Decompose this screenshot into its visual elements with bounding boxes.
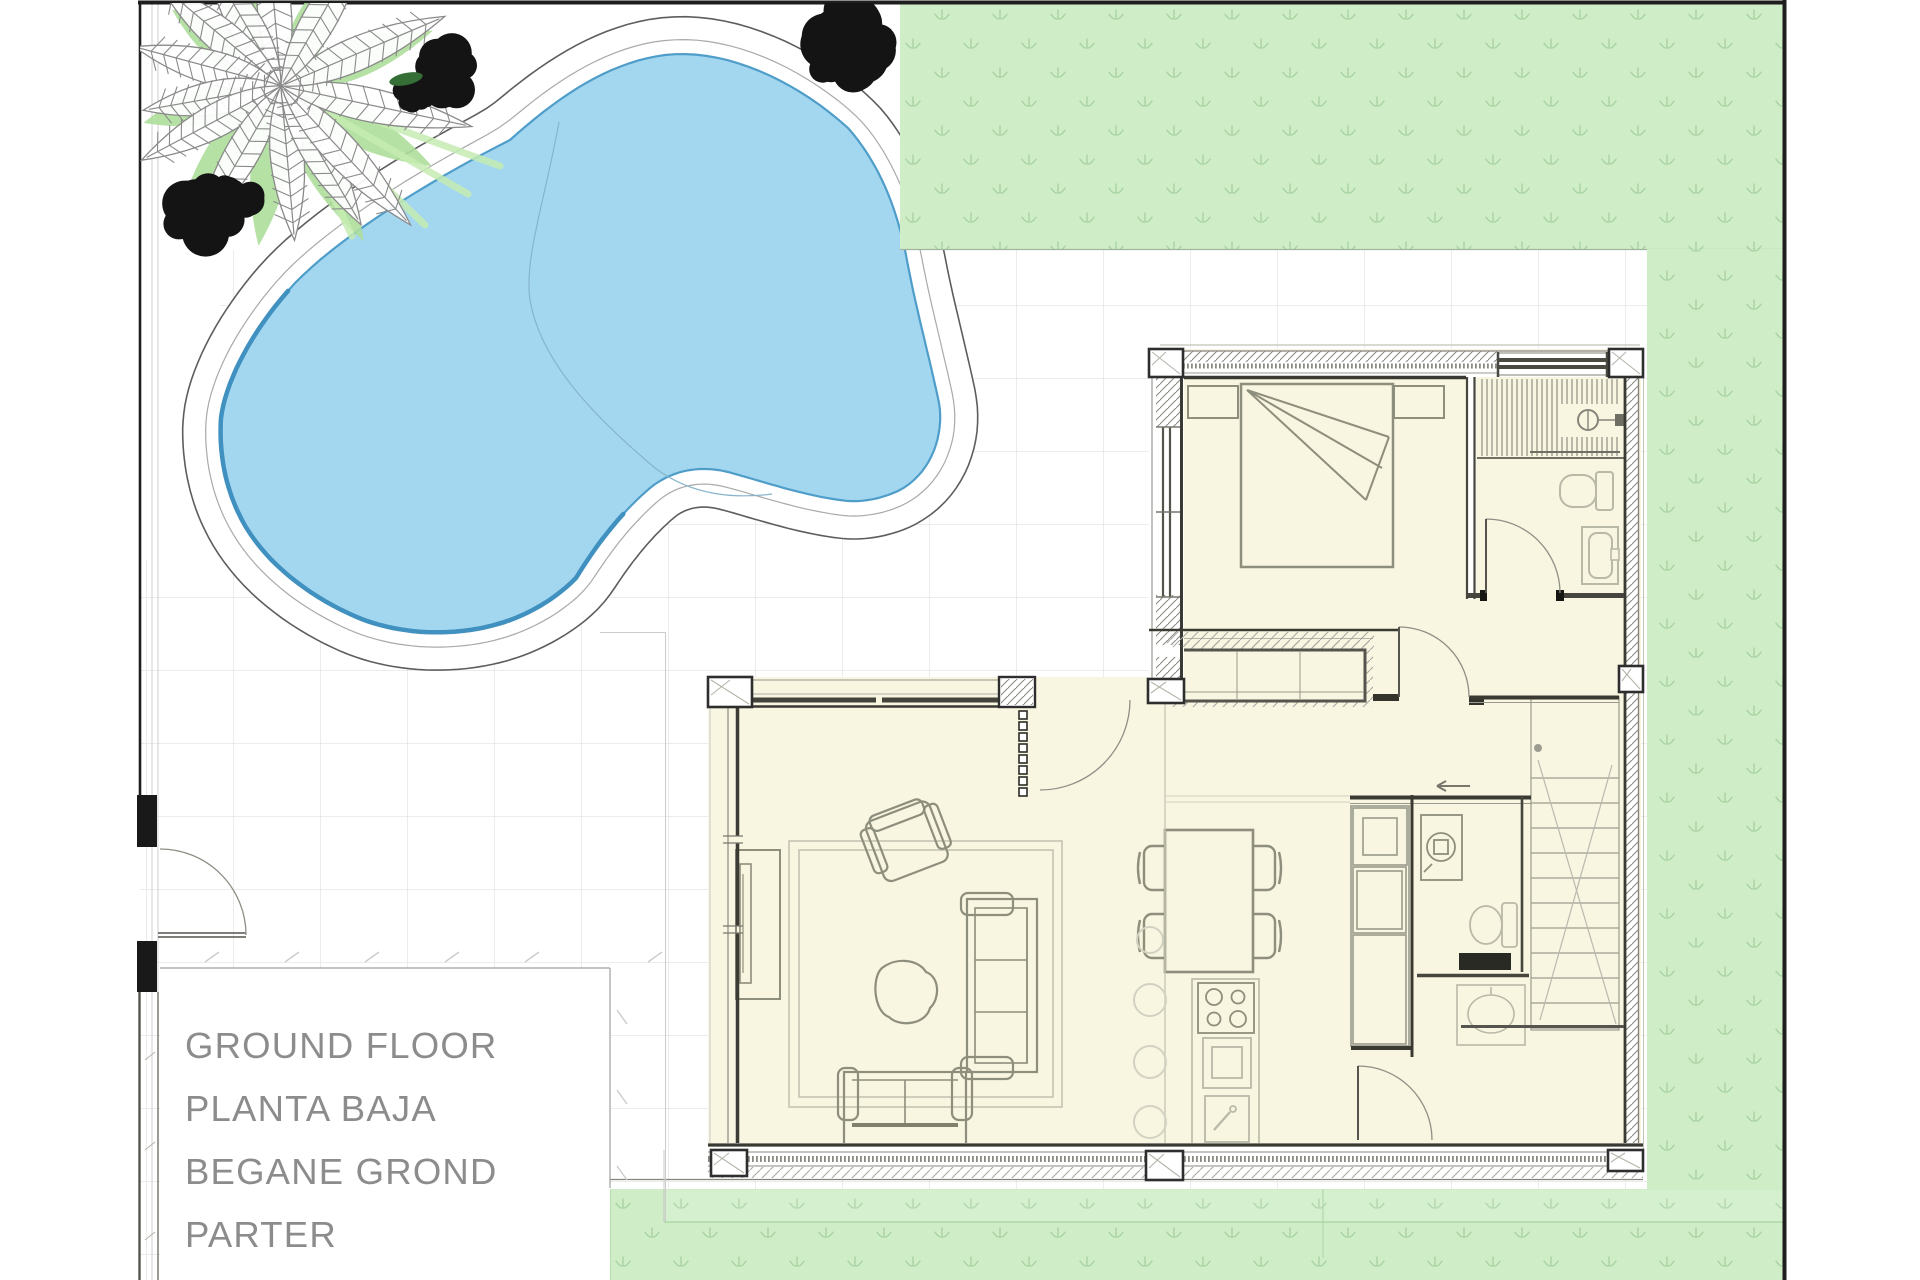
- svg-text:PARTER: PARTER: [185, 1214, 337, 1255]
- svg-text:PLANTA BAJA: PLANTA BAJA: [185, 1088, 437, 1129]
- svg-text:GROUND FLOOR: GROUND FLOOR: [185, 1025, 498, 1066]
- svg-text:BEGANE GROND: BEGANE GROND: [185, 1151, 498, 1192]
